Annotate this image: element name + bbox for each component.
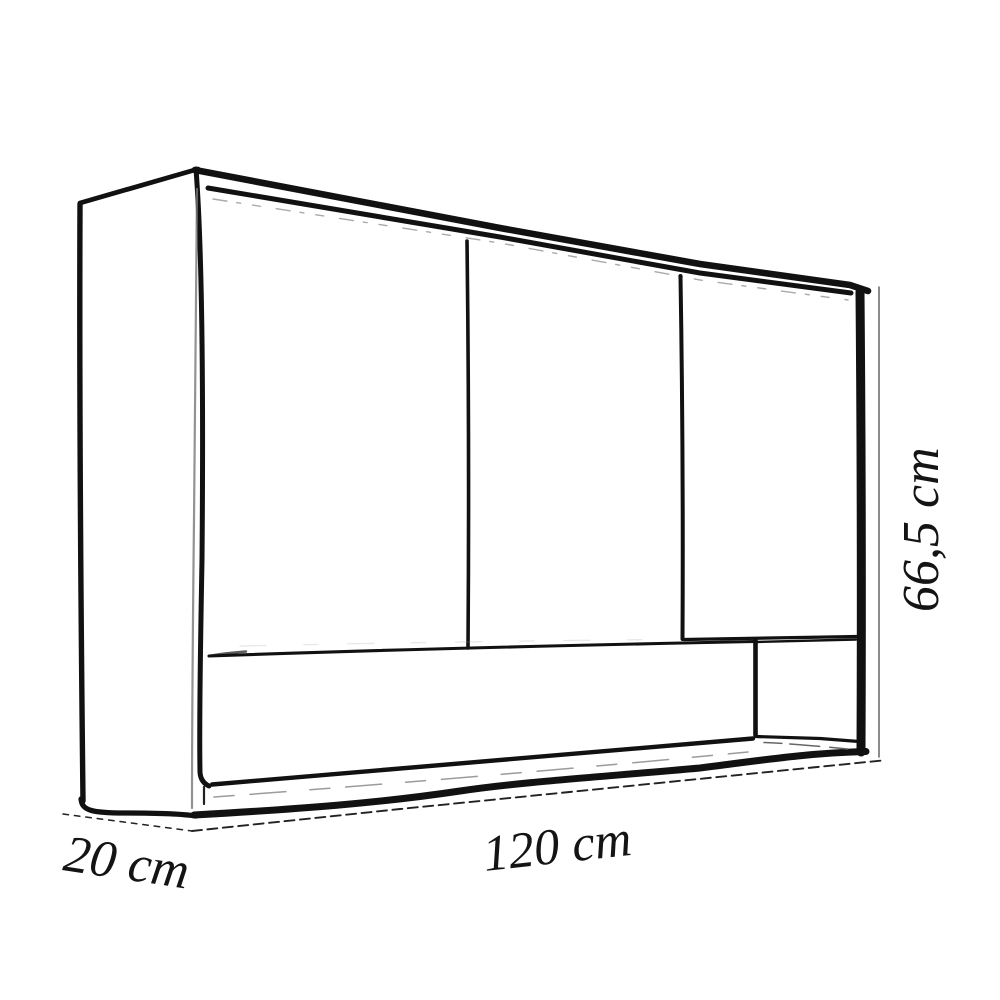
svg-text:20 cm: 20 cm — [60, 825, 193, 900]
svg-text:66,5 cm: 66,5 cm — [893, 447, 950, 612]
svg-text:120 cm: 120 cm — [480, 811, 634, 883]
